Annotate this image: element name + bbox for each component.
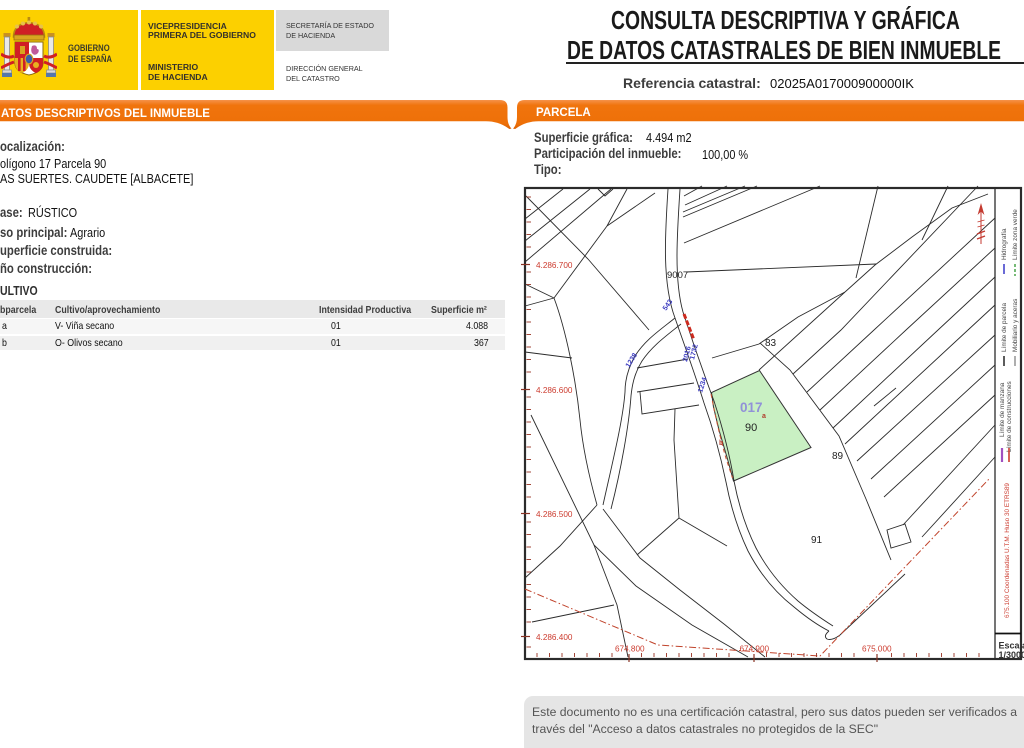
svg-text:4.286.500: 4.286.500 xyxy=(536,510,573,519)
svg-text:Mobiliario y aceras: Mobiliario y aceras xyxy=(1012,299,1019,352)
svg-text:83: 83 xyxy=(765,338,777,349)
svg-text:Hidrografía: Hidrografía xyxy=(1001,228,1008,260)
svg-text:017: 017 xyxy=(740,400,763,415)
svg-text:4.286.700: 4.286.700 xyxy=(536,261,573,270)
svg-text:1/3000: 1/3000 xyxy=(999,650,1024,660)
svg-text:4.286.400: 4.286.400 xyxy=(536,633,573,642)
svg-text:91: 91 xyxy=(811,535,823,546)
svg-text:89: 89 xyxy=(832,451,844,462)
svg-text:a: a xyxy=(762,413,766,420)
svg-text:b: b xyxy=(719,440,723,447)
svg-text:Escala: Escala xyxy=(999,641,1024,651)
svg-text:1234: 1234 xyxy=(697,377,709,394)
svg-text:90: 90 xyxy=(745,422,757,434)
svg-text:674.900: 674.900 xyxy=(740,645,770,654)
svg-text:Límite de construcciones: Límite de construcciones xyxy=(1006,381,1013,452)
svg-text:9007: 9007 xyxy=(667,270,688,281)
svg-text:Límite zona verde: Límite zona verde xyxy=(1012,209,1019,260)
svg-text:675.000: 675.000 xyxy=(862,645,892,654)
svg-text:675.100 Coordenadas U.T.M. Hus: 675.100 Coordenadas U.T.M. Huso 30 ETRS8… xyxy=(1004,483,1011,618)
svg-text:Límite de parcela: Límite de parcela xyxy=(1001,303,1008,352)
svg-text:674.800: 674.800 xyxy=(615,645,645,654)
svg-text:1238: 1238 xyxy=(625,352,639,369)
svg-text:4.286.600: 4.286.600 xyxy=(536,386,573,395)
svg-text:Límite de manzana: Límite de manzana xyxy=(999,382,1006,437)
